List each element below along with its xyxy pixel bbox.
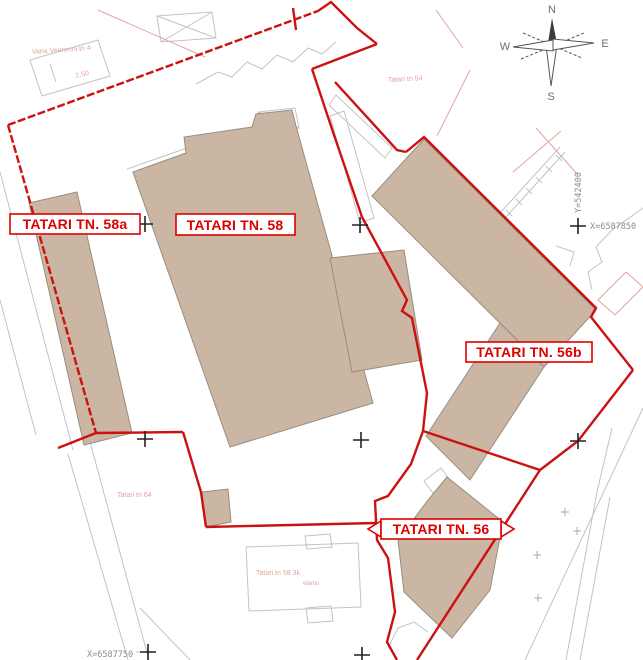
coordinate-y-right: Y=542400: [574, 172, 584, 213]
parcel-label-tatari-58: TATARI TN. 58: [187, 217, 284, 233]
coordinate-x-bottom: X=6587750: [87, 650, 133, 660]
parcel-label-tatari-56b: TATARI TN. 56b: [476, 344, 581, 360]
compass-rose-icon: N S E W: [500, 4, 609, 103]
compass-north-label: N: [548, 4, 556, 16]
cadastral-site-plan: Vana Veerenni tn 4 2.50 Tatari tn 54 Tat…: [0, 0, 643, 660]
compass-west-needle: [513, 40, 553, 51]
parcel-label-tatari-58-3k: Tatari tn 58 3k: [256, 570, 300, 577]
site-plan-drawing: Vana Veerenni tn 4 2.50 Tatari tn 54 Tat…: [0, 0, 643, 660]
building-tatari-56: [398, 477, 503, 638]
parcel-label-tatari-56: TATARI TN. 56: [393, 521, 490, 537]
parcel-label-tatari-64: Tatari tn 64: [117, 492, 152, 499]
compass-west-label: W: [500, 41, 511, 53]
parcel-label-tatari-54: Tatari tn 54: [388, 75, 423, 84]
compass-east-label: E: [601, 38, 608, 50]
coordinate-x-right: X=6587850: [590, 222, 636, 232]
elevation-label: 2.50: [75, 70, 90, 80]
street-label-vana-veerenni: Vana Veerenni tn 4: [32, 45, 91, 56]
label-arrow-right-tatari-56: [501, 521, 514, 537]
parcel-label-tatari-58a: TATARI TN. 58a: [23, 216, 128, 232]
building-footprints: [29, 110, 596, 638]
building-use-label-elamu: elamu: [303, 581, 319, 587]
compass-east-needle: [553, 39, 594, 50]
compass-south-label: S: [547, 91, 554, 103]
